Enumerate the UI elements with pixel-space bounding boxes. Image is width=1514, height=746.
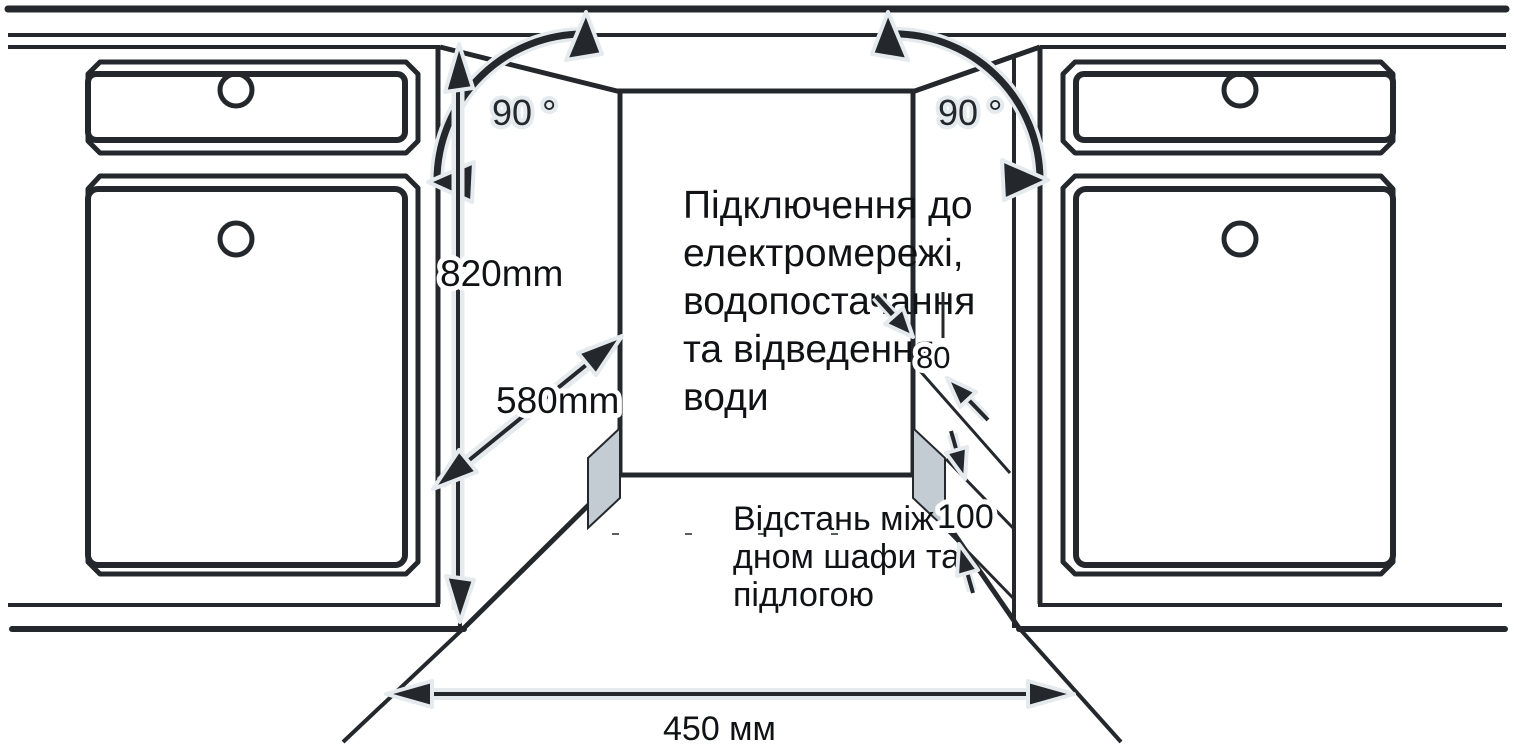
- left-plinth-panel: [588, 428, 620, 528]
- arrow-down-icon: [446, 576, 474, 622]
- plinth-gap-label: 100: [937, 498, 994, 536]
- arrow-right-icon: [1028, 681, 1074, 707]
- dimension-width-450: 450 мм: [386, 681, 1074, 746]
- left-door-front: [88, 189, 405, 565]
- height-label: 820mm: [440, 253, 563, 294]
- left-drawer-knob: [220, 74, 252, 106]
- floor-note-line-3: підлогою: [733, 576, 874, 614]
- left-cabinet: [88, 62, 418, 574]
- angle-label-right: 90 °: [938, 92, 1002, 133]
- right-door-front: [1076, 189, 1393, 565]
- floor-note-line-2: дном шафи та: [733, 538, 960, 576]
- installation-diagram: 90 ° 90 ° 820mm 580mm 450 мм Підключення…: [0, 0, 1514, 746]
- utilities-note-line-2: електромережі,: [683, 232, 964, 275]
- left-drawer-front: [88, 74, 405, 140]
- floor-gap-note: Відстань між дном шафи та підлогою: [733, 500, 960, 614]
- perspective-line-left: [343, 628, 464, 742]
- right-cabinet: [1063, 62, 1393, 574]
- utilities-note-line-1: Підключення до: [683, 184, 973, 227]
- floor-note-line-1: Відстань між: [733, 500, 934, 538]
- right-drawer-knob: [1224, 74, 1256, 106]
- depth-label: 580mm: [496, 380, 619, 421]
- utilities-note-line-5: води: [683, 376, 769, 419]
- angle-label-left: 90 °: [492, 92, 556, 133]
- countertop: [8, 9, 1506, 47]
- arrow-left-icon: [386, 681, 432, 707]
- utility-offset-label: 80: [916, 340, 950, 375]
- utilities-note-line-4: та відведення: [683, 328, 935, 371]
- width-label: 450 мм: [663, 710, 776, 746]
- left-door-knob: [220, 223, 252, 255]
- right-door-bevel: [1063, 176, 1393, 574]
- diagram-canvas: 90 ° 90 ° 820mm 580mm 450 мм Підключення…: [0, 0, 1514, 746]
- utilities-note-line-3: водопостачання: [683, 280, 975, 323]
- right-door-knob: [1224, 223, 1256, 255]
- door-swing-right: 90 °: [872, 12, 1048, 200]
